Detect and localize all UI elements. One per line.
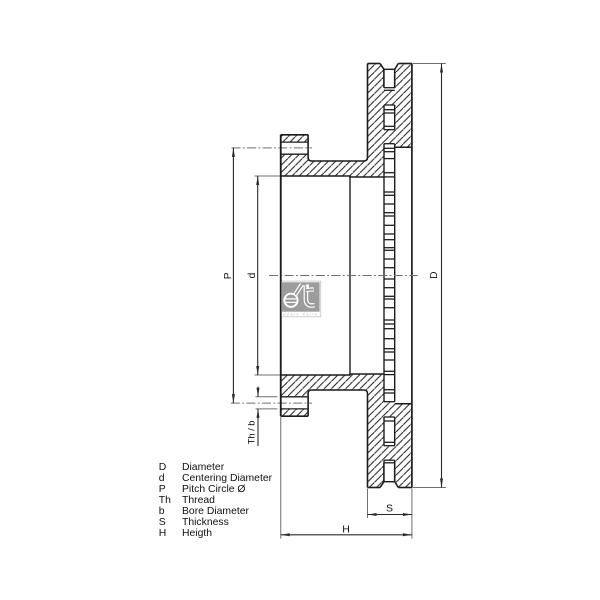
svg-text:Th: Th — [159, 495, 171, 506]
svg-text:Heigth: Heigth — [182, 528, 212, 539]
svg-text:d: d — [247, 272, 258, 278]
svg-text:Diameter: Diameter — [182, 462, 225, 473]
svg-text:S: S — [386, 503, 393, 515]
svg-text:b: b — [159, 506, 165, 517]
svg-text:D: D — [159, 462, 167, 473]
svg-text:D: D — [429, 272, 440, 279]
svg-text:S: S — [159, 517, 166, 528]
svg-text:P: P — [223, 272, 234, 279]
svg-text:Thread: Thread — [182, 495, 215, 506]
svg-text:Pitch Circle Ø: Pitch Circle Ø — [182, 484, 246, 495]
svg-text:Bore Diameter: Bore Diameter — [182, 506, 250, 517]
svg-text:P: P — [159, 484, 166, 495]
svg-text:Spare Parts: Spare Parts — [283, 313, 318, 317]
svg-text:d: d — [159, 473, 165, 484]
svg-text:H: H — [342, 524, 350, 536]
svg-text:Centering Diameter: Centering Diameter — [182, 473, 273, 484]
svg-text:H: H — [159, 528, 167, 539]
svg-text:Thickness: Thickness — [182, 517, 229, 528]
svg-text:Th / b: Th / b — [246, 421, 256, 445]
